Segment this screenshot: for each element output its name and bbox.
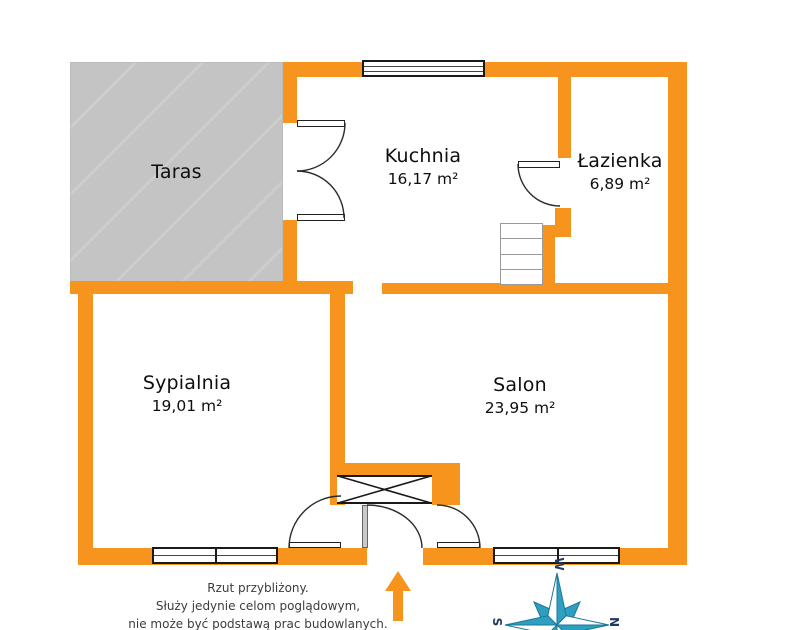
stair-step bbox=[501, 239, 542, 254]
terrace-door-leaf-top bbox=[297, 120, 345, 127]
stair-step bbox=[501, 270, 542, 284]
room-area-salon: 23,95 m² bbox=[485, 399, 556, 417]
stair-step bbox=[501, 255, 542, 270]
room-name-sypialnia: Sypialnia bbox=[143, 372, 231, 394]
stair-step bbox=[501, 224, 542, 239]
room-name-kuchnia: Kuchnia bbox=[385, 145, 461, 167]
wall-bathroom-lower bbox=[542, 225, 555, 287]
room-label-salon: Salon 23,95 m² bbox=[450, 374, 590, 417]
window-pane-line bbox=[364, 71, 483, 72]
terrace-door-leaf-bottom bbox=[297, 214, 345, 221]
compass-label-left: S bbox=[490, 618, 504, 627]
room-area-kuchnia: 16,17 m² bbox=[388, 170, 459, 188]
stairs bbox=[500, 223, 543, 285]
wall-bathroom-upper bbox=[558, 70, 571, 158]
window-bedroom bbox=[152, 547, 278, 564]
floor-plan: Taras bbox=[0, 0, 786, 630]
wall-terrace-bottom bbox=[70, 281, 353, 294]
terrace-door-arc-top bbox=[297, 123, 345, 171]
window-kitchen bbox=[362, 60, 485, 77]
left-door-leaf bbox=[289, 542, 341, 548]
room-area-sypialnia: 19,01 m² bbox=[152, 397, 223, 415]
wall-entrance-block bbox=[432, 467, 460, 505]
room-name-salon: Salon bbox=[493, 374, 547, 396]
disclaimer-line-3: nie może być podstawą prac budowlanych. bbox=[58, 615, 458, 630]
window-pane-divider bbox=[557, 549, 559, 562]
wall-terrace-kitchen-lower bbox=[283, 220, 297, 284]
disclaimer-line-1: Rzut przybliżony. bbox=[58, 579, 458, 597]
entrance-door-arc bbox=[367, 505, 422, 548]
bathroom-door-arc bbox=[518, 164, 560, 206]
entrance-door-leaf bbox=[362, 505, 368, 548]
wall-terrace-kitchen-upper bbox=[283, 62, 297, 123]
right-door-leaf bbox=[437, 542, 480, 548]
room-name-taras: Taras bbox=[151, 161, 201, 183]
window-pane-line bbox=[364, 66, 483, 67]
room-area-lazienka: 6,89 m² bbox=[590, 175, 651, 193]
disclaimer-note: Rzut przybliżony. Służy jedynie celom po… bbox=[58, 579, 458, 630]
terrace-area: Taras bbox=[70, 62, 283, 282]
compass-rose-icon: W S N bbox=[490, 557, 621, 630]
wall-left bbox=[78, 281, 93, 565]
room-label-sypialnia: Sypialnia 19,01 m² bbox=[107, 372, 267, 415]
wall-top bbox=[283, 62, 687, 77]
terrace-door-arc-bottom bbox=[297, 171, 344, 218]
compass-label-right: N bbox=[607, 617, 621, 627]
disclaimer-line-2: Służy jedynie celom poglądowym, bbox=[58, 597, 458, 615]
room-name-lazienka: Łazienka bbox=[577, 150, 662, 172]
room-label-lazienka: Łazienka 6,89 m² bbox=[565, 150, 675, 193]
shaft-box bbox=[337, 475, 432, 504]
wall-right bbox=[668, 62, 687, 565]
window-livingroom bbox=[493, 547, 620, 564]
bathroom-door-leaf bbox=[518, 161, 560, 168]
window-pane-divider bbox=[215, 549, 217, 562]
room-label-kuchnia: Kuchnia 16,17 m² bbox=[343, 145, 503, 188]
